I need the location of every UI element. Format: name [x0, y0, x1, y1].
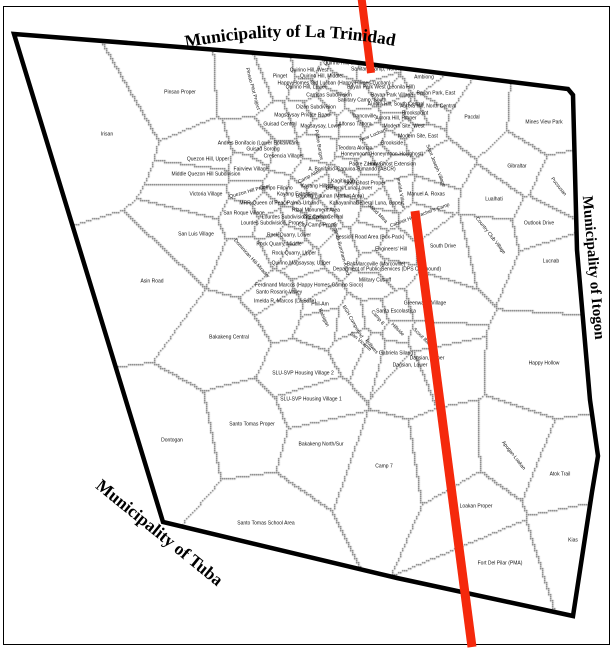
- barangay-label: Engineers' Hill: [375, 248, 407, 253]
- barangay-labels-layer: Quirino Hill, EastQuirino Hill, WestSani…: [0, 0, 615, 653]
- barangay-label: Cabinet Hill-Teacher's Camp: [389, 203, 450, 229]
- barangay-label: Imelda R. Marcos (La Salle): [254, 300, 316, 305]
- barangay-label: Quezon Hill, Upper: [187, 158, 229, 163]
- barangay-label: City Camp Central: [303, 216, 344, 221]
- barangay-label: San Roque Village: [223, 212, 264, 217]
- barangay-label: Guisad Central: [263, 123, 296, 128]
- barangay-label: Outlook Drive: [524, 222, 554, 227]
- barangay-label: A. Bonifacio-Caguioa-Rimando (ABCR): [308, 168, 395, 173]
- barangay-label: Santo Tomas Proper: [229, 423, 275, 428]
- barangay-label: Lourdes Subdivision, Proper: [241, 222, 304, 227]
- barangay-label: Dontogan: [161, 439, 183, 444]
- barangay-label: SLU-SVP Housing Village 2: [272, 372, 334, 377]
- barangay-label: Aurora Hill, North Central: [400, 105, 456, 110]
- barangay-label: Quirino Hill, Lower: [286, 86, 327, 91]
- barangay-label: Dagsian, Lower: [393, 364, 428, 369]
- barangay-label: Dagsian, Upper: [410, 357, 445, 362]
- barangay-label: Magsaysay, Lower: [300, 125, 341, 130]
- barangay-label: Irisan: [101, 133, 113, 138]
- barangay-label: Cresencia Village: [264, 155, 303, 160]
- barangay-label: Country Club Village: [474, 217, 506, 256]
- barangay-label: Saint Joseph Village: [424, 144, 446, 188]
- barangay-label: Apugan-Loakan: [500, 441, 526, 472]
- barangay-label: Trancoville: [352, 115, 376, 120]
- barangay-label: South Drive: [430, 245, 456, 250]
- barangay-label: Rock Quarry, Middle: [256, 243, 301, 248]
- barangay-label: Greenwater Village: [404, 302, 446, 307]
- barangay-label: General Luna, Upper: [356, 202, 403, 207]
- barangay-label: Ferdinand Marcos (Happy Homes-Campo Sioc…: [255, 284, 363, 289]
- barangay-label: Atok Trail: [550, 473, 571, 478]
- barangay-label: Pinsao Proper: [164, 91, 196, 96]
- barangay-label: Rock Quarry, Lower: [267, 234, 311, 239]
- barangay-label: Pinsao Pilot Project: [244, 67, 260, 110]
- barangay-label: Guisad Sorong: [246, 148, 279, 153]
- barangay-label: Scout Barrio: [412, 328, 435, 351]
- barangay-label: Aurora Hill, Proper: [375, 117, 416, 122]
- barangay-label: Padre Burgos: [313, 130, 323, 161]
- barangay-label: Alfonso Tabora: [338, 123, 371, 128]
- barangay-label: San Luis Village: [178, 233, 214, 238]
- barangay-label: Modern Site, East: [398, 135, 438, 140]
- barangay-label: Kagitingan: [331, 180, 355, 185]
- barangay-label: Bakakeng Central: [209, 336, 249, 341]
- barangay-label: Loakan Proper: [460, 505, 493, 510]
- barangay-label: Santa Escolastica: [376, 310, 416, 315]
- barangay-label: Liwanag-Loakan: [441, 439, 454, 476]
- barangay-label: Bagong Lipunan (Market Area): [296, 195, 364, 200]
- barangay-label: Bakakeng North/Sur: [298, 443, 343, 448]
- barangay-label: Hillside: [390, 323, 405, 338]
- barangay-label: Kias: [568, 539, 578, 544]
- barangay-label: Ambiong: [414, 76, 434, 81]
- barangay-label: Rock Quarry, Upper: [272, 252, 316, 257]
- barangay-label: Lualhati: [485, 198, 503, 203]
- barangay-label: Camp 7: [375, 465, 393, 470]
- barangay-label: Pinget: [273, 75, 287, 80]
- barangay-label: Salud Mitra: [366, 203, 387, 224]
- barangay-label: Sanitary Camp, North: [351, 68, 399, 73]
- barangay-label: MRR-Queen of Peace: [239, 202, 288, 207]
- barangay-label: Lucnab: [543, 260, 559, 265]
- barangay-label: Pucsusan: [549, 177, 566, 197]
- barangay-label: Rizal Monument Area: [292, 209, 340, 214]
- barangay-label: Session Road Area (Box-Pack): [336, 236, 405, 241]
- barangay-label: Gibraltar: [507, 165, 526, 170]
- barangay-label: Happy Hollow: [529, 362, 560, 367]
- barangay-label: Honeymoon (Honeymoon-Holyghost): [341, 153, 424, 158]
- barangay-label: Palma-Urbano: [287, 202, 319, 207]
- barangay-label: Bayan Park West (Leonila Hill): [347, 86, 415, 91]
- barangay-label: Dizon Subdivision: [296, 106, 336, 111]
- barangay-label: Middle Quezon Hill Subdivision: [172, 173, 241, 178]
- barangay-label: Kabayanihan: [329, 202, 358, 207]
- barangay-label: Manuel A. Roxas: [407, 193, 445, 198]
- barangay-label: Quirino Magsaysay, Upper: [272, 262, 331, 267]
- barangay-label: General Luna, Lower: [326, 187, 373, 192]
- barangay-label: Victoria Village: [190, 193, 223, 198]
- barangay-label: Bayan Park, East: [417, 92, 456, 97]
- barangay-label: Santo Rosario Valley: [256, 291, 302, 296]
- barangay-label: Quirino Hill, Middle: [300, 75, 342, 80]
- barangay-label: Asin Road: [140, 280, 163, 285]
- barangay-label: Fort Del Pilar (PMA): [478, 562, 523, 567]
- baguio-barangay-map: Quirino Hill, EastQuirino Hill, WestSani…: [0, 0, 615, 653]
- barangay-label: Modern Site, West: [383, 125, 424, 130]
- barangay-label: Santo Tomas School Area: [237, 522, 294, 527]
- barangay-label: Gabriela Silang: [379, 352, 413, 357]
- barangay-label: Phil-Am: [311, 303, 329, 308]
- barangay-label: Brookside: [381, 142, 403, 147]
- barangay-label: SLU-SVP Housing Village 1: [280, 398, 342, 403]
- barangay-label: Magsaysay Private Road: [274, 114, 330, 119]
- barangay-label: Balsigan: [317, 308, 330, 328]
- barangay-label: Military Cut-off: [359, 279, 391, 284]
- barangay-label: Pacdal: [464, 116, 479, 121]
- barangay-label: Mines View Park: [525, 121, 562, 126]
- barangay-label: Quezon Hill Proper: [229, 184, 271, 200]
